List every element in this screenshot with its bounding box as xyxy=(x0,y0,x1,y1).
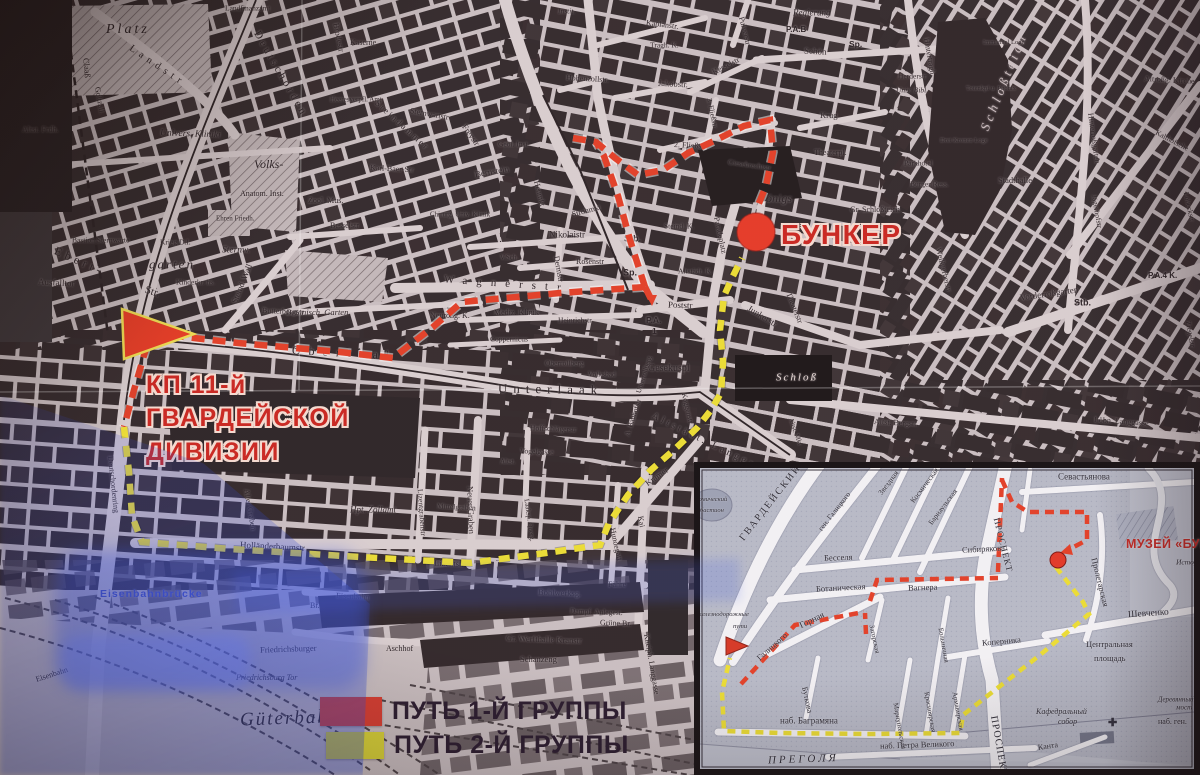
street-label: Gesekuspl xyxy=(648,364,690,374)
street-label: Lizentgrabenstr xyxy=(416,489,427,536)
street-label: Volks- xyxy=(254,158,283,170)
inset-street-label: Армавирская xyxy=(951,691,965,731)
street-label: Hinterroßgarten xyxy=(1086,112,1101,164)
street-label: P.A.4 K. xyxy=(1148,272,1177,280)
street-label: Hintertragh. xyxy=(922,37,937,77)
street-label: Kramer xyxy=(644,466,670,488)
legend-label-group2: ПУТЬ 2-Й ГРУППЫ xyxy=(394,731,629,760)
street-label: Immanuel Loge xyxy=(983,40,1024,47)
street-label: Jakobstr. xyxy=(658,79,688,89)
inset-street-label: Канта xyxy=(1037,741,1058,752)
street-label: önigs xyxy=(766,192,792,204)
street-label: Heumkt xyxy=(532,180,546,207)
museum-bunker-label: МУЗЕЙ «БУНКЕР» xyxy=(1126,537,1200,551)
street-label: Ebert- xyxy=(53,245,107,278)
street-label: Sp. xyxy=(623,269,637,278)
street-label: Anatom. Inst. xyxy=(240,190,284,198)
street-label: Altroßg. Kirche xyxy=(1144,75,1195,86)
street-label: Goltzall. xyxy=(93,86,106,115)
street-label: Altstädt. K. xyxy=(678,267,713,275)
street-label: Str. xyxy=(143,285,161,300)
street-label: Junkerstr xyxy=(746,304,779,329)
street-label: Mittelgraben xyxy=(437,502,476,512)
street-label: Altst. Mkt xyxy=(787,417,803,446)
street-label: Giesebrechtstr xyxy=(727,158,771,171)
street-label: Gr. Schloßteich xyxy=(850,206,900,214)
inset-street-label: Горная xyxy=(798,610,826,630)
inset-street-label: ПРОСПЕКТ xyxy=(988,715,1008,775)
street-label: Schloßteich xyxy=(978,31,1029,133)
inset-street-label: железнодорожные xyxy=(696,612,749,619)
kp-flag-marker xyxy=(122,309,194,359)
street-label: Ziegelstr xyxy=(1184,320,1196,348)
route-arrowhead xyxy=(646,295,657,306)
inset-street-label: Коперника xyxy=(982,635,1022,647)
street-label: Ausfalltor xyxy=(38,278,75,289)
inset-street-label: наб. ген. xyxy=(1158,718,1187,726)
kp-label-line2: ГВАРДЕЙСКОЙ xyxy=(146,405,350,431)
bunker-marker xyxy=(737,213,775,251)
street-label: Krug xyxy=(820,111,837,120)
street-label: Nikolaistr xyxy=(549,231,585,240)
street-label: Regierung xyxy=(793,9,831,18)
inset-street-label: Кафедральный xyxy=(1036,708,1087,716)
street-label: Paradeplatz xyxy=(712,216,728,254)
inset-street-label: Звездная xyxy=(877,469,900,496)
street-label: Oberrollberg xyxy=(545,359,584,367)
street-label: Brodestr xyxy=(332,22,346,52)
inset-street-label: Ботаническая xyxy=(816,582,866,593)
street-label: Schloß xyxy=(776,373,818,384)
street-label: Strohmkt xyxy=(571,203,602,218)
inset-street-label: Вагнера xyxy=(908,583,938,593)
street-label: Vorderroßgarten xyxy=(1019,285,1078,302)
street-label: Altst. xyxy=(500,459,515,466)
street-label: Instit. xyxy=(558,7,575,15)
street-label: Löbn. Langgasse xyxy=(1094,416,1149,428)
street-label: Oberlaak xyxy=(292,344,400,362)
inset-street-label: ПРЕГОЛЯ xyxy=(768,753,839,766)
legend-row-group1: ПУТЬ 1-Й ГРУППЫ xyxy=(320,697,627,726)
inset-street-label: пути xyxy=(733,624,747,631)
street-label: Hoffschlägerstr xyxy=(530,424,577,433)
street-label: Geol. Inst. xyxy=(498,140,529,148)
street-label: Zool. Mus. xyxy=(308,197,343,205)
street-label: 2. Fließstr xyxy=(674,141,707,151)
street-label: Besselstr xyxy=(330,222,359,230)
inset-street-label: мост xyxy=(1176,705,1192,712)
street-label: Heeresverpfl. Amt xyxy=(330,97,382,104)
street-label: Kaserne xyxy=(350,39,376,47)
inset-street-label: Шевченко xyxy=(1128,608,1169,620)
street-label: Hundegatt xyxy=(608,527,623,561)
inset-street-label: ген. Галицкого xyxy=(817,491,852,533)
inset-street-label: Загорская xyxy=(868,624,881,654)
street-label: Botanisch. Garten xyxy=(286,308,348,317)
street-label: Stb. xyxy=(624,235,641,244)
street-label: Chirurg. Univ. Klinik xyxy=(430,212,490,219)
street-label: Hpt. Zollamt xyxy=(350,506,396,515)
inset-street-label: Буткова xyxy=(800,686,813,714)
inset-street-label: Истор. муз. xyxy=(1176,558,1200,566)
legend: ПУТЬ 1-Й ГРУППЫ ПУТЬ 2-Й ГРУППЫ xyxy=(318,693,678,768)
street-label: Univers. Kliniki xyxy=(160,129,221,141)
street-label: Pulverstr xyxy=(737,16,752,46)
street-label: Deutschorden xyxy=(251,29,309,119)
street-label: Steind. K. xyxy=(664,222,694,230)
street-label: Ehren Friedh. xyxy=(216,216,255,223)
legend-row-group2: ПУТЬ 2-Й ГРУППЫ xyxy=(326,731,629,760)
street-label: Theaterstr xyxy=(784,292,804,325)
street-label: Platz xyxy=(106,23,150,37)
street-label: Lobeckstr xyxy=(1182,191,1196,222)
street-label: V.Sch. xyxy=(500,255,518,262)
street-label: Univ. Bibl. xyxy=(896,86,928,94)
street-label: Sp. xyxy=(849,40,862,49)
street-label: Theaterpl. xyxy=(814,149,847,157)
schlossteich-pond xyxy=(928,18,1012,235)
street-label: P.A. xyxy=(646,316,661,325)
street-label: Schön xyxy=(804,47,827,57)
street-label: Kesselstr xyxy=(711,56,741,76)
street-label: Bastion Sternwarte xyxy=(72,236,129,244)
street-label: Drei Kronen Loge xyxy=(940,138,988,145)
street-label: Steindammer xyxy=(373,99,431,153)
inset-street-label: ономический xyxy=(694,497,727,504)
street-label: Bernstein xyxy=(474,165,510,180)
street-label: Butterbergstr xyxy=(262,307,304,316)
inset-street-label: Галицкого xyxy=(755,631,788,662)
inset-street-label: бастион xyxy=(700,508,724,515)
street-label: Herderstr xyxy=(898,72,926,80)
street-label: Poststr xyxy=(668,301,693,311)
street-label: Grüne Br. xyxy=(600,619,632,628)
castle-block xyxy=(735,355,832,401)
inset-street-label: площадь xyxy=(1094,654,1126,663)
street-label: Neuroßg. K. xyxy=(430,312,470,320)
street-label: Kai xyxy=(636,515,646,528)
inset-street-label: собор xyxy=(1058,718,1077,726)
street-label: Aschhof xyxy=(386,645,413,653)
street-label: 3. Fließstr xyxy=(705,97,719,128)
inset-street-label: Барнаульская xyxy=(927,488,959,527)
street-label: Dampf. Anlegest. xyxy=(570,607,623,616)
blue-reflection-glow xyxy=(60,635,250,690)
street-label: Volksbad xyxy=(588,370,616,378)
street-label: Unterlaak xyxy=(498,382,603,397)
street-label: Weißgerberstr xyxy=(934,247,953,293)
street-label: Jägerhofstr xyxy=(1090,194,1103,228)
street-label: Kalthofsche xyxy=(1154,129,1190,153)
street-label: Krieg D.I. xyxy=(160,238,191,246)
street-label: Dermstr xyxy=(552,255,564,282)
street-label: Schanzeng xyxy=(520,655,557,664)
street-label: Coppernicus xyxy=(490,335,528,343)
street-label: Stadthalle xyxy=(998,176,1032,185)
street-label: Totenkpf u. Phönix xyxy=(966,86,1016,93)
street-label: Hohenzollstr. xyxy=(566,74,609,84)
street-label: Kinderkr. hs. xyxy=(176,278,215,286)
inset-street-label: Центральная xyxy=(1086,640,1133,649)
street-label: Stb. xyxy=(1074,299,1091,308)
inset-street-label: Больничная xyxy=(937,627,950,663)
map-fold-lines xyxy=(0,0,1200,392)
street-label: A. Bauhofstr xyxy=(623,398,642,437)
inset-street-label: Красноярская xyxy=(923,691,937,733)
street-label: 1 xyxy=(652,327,657,336)
street-label: Koggenstr xyxy=(680,392,694,424)
street-label: Altst. Frdh. xyxy=(22,126,59,134)
kp-label-line1: КП 11-й xyxy=(146,372,350,398)
inset-street-label: Бесселя xyxy=(824,553,853,562)
street-label: Sternw. xyxy=(222,246,250,256)
university-block xyxy=(698,146,802,206)
street-label: Kaplanstr. xyxy=(646,19,679,31)
street-label: Karl-Baer-Str xyxy=(370,164,414,174)
inset-street-label: Деревянный xyxy=(1158,697,1194,704)
street-label: Sternwartstr xyxy=(409,107,449,122)
street-label: Mediz. Klinik xyxy=(494,309,539,317)
street-label: Rosenstr xyxy=(576,258,604,266)
inset-street-labels: СевастьяноваПролетарскаяШевченкоИстор. м… xyxy=(700,468,1194,769)
inset-street-label: ГВАРДЕЙСКИЙ xyxy=(738,463,804,543)
legend-label-group1: ПУТЬ 1-Й ГРУППЫ xyxy=(392,697,627,726)
bunker-label: БУНКЕР xyxy=(781,220,902,249)
street-label: Gr. Werfthalle Kranstr xyxy=(506,634,582,645)
street-label: Altst. Bergstr. xyxy=(874,418,919,428)
street-label: Heinrichstr xyxy=(558,316,592,324)
street-label: Bürger Ress. xyxy=(910,180,949,188)
street-label: Landstr xyxy=(127,44,187,89)
street-label: Vogelgasse xyxy=(520,447,554,456)
inset-street-label: наб. Петра Великого xyxy=(880,739,955,750)
street-label: Steind. Wall xyxy=(230,263,253,305)
inset-street-label: Пролетарская xyxy=(1090,557,1110,607)
street-label: Claaß xyxy=(82,58,92,78)
street-label: Tragh. K. xyxy=(650,41,679,49)
street-label: Unterrollberg xyxy=(636,356,654,394)
street-label: Laaksp. Querg. xyxy=(523,499,536,542)
street-label: garten xyxy=(149,258,195,271)
inset-street-label: Космическая xyxy=(909,467,940,505)
street-label: Kneiph. Langgasse xyxy=(642,633,661,695)
street-label: Wagnerstr xyxy=(444,275,570,295)
street-label: Neuer Graben xyxy=(466,486,476,534)
street-label: Freystr xyxy=(461,123,482,148)
street-label: Parkhotel xyxy=(904,159,933,167)
photo-of-assault-route-map: PlatzClaaßGoltzall.LandstrDeutschordenBr… xyxy=(0,0,1200,775)
inset-street-label: Севастьянова xyxy=(1058,473,1110,482)
street-label: P.A.B xyxy=(786,26,806,34)
inset-street-label: наб. Баграмяна xyxy=(780,717,838,726)
street-label: Landfinanzamt xyxy=(225,4,270,12)
inset-modern-map: ✚ СевастьяноваПролетарскаяШевченкоИстор.… xyxy=(694,462,1200,775)
